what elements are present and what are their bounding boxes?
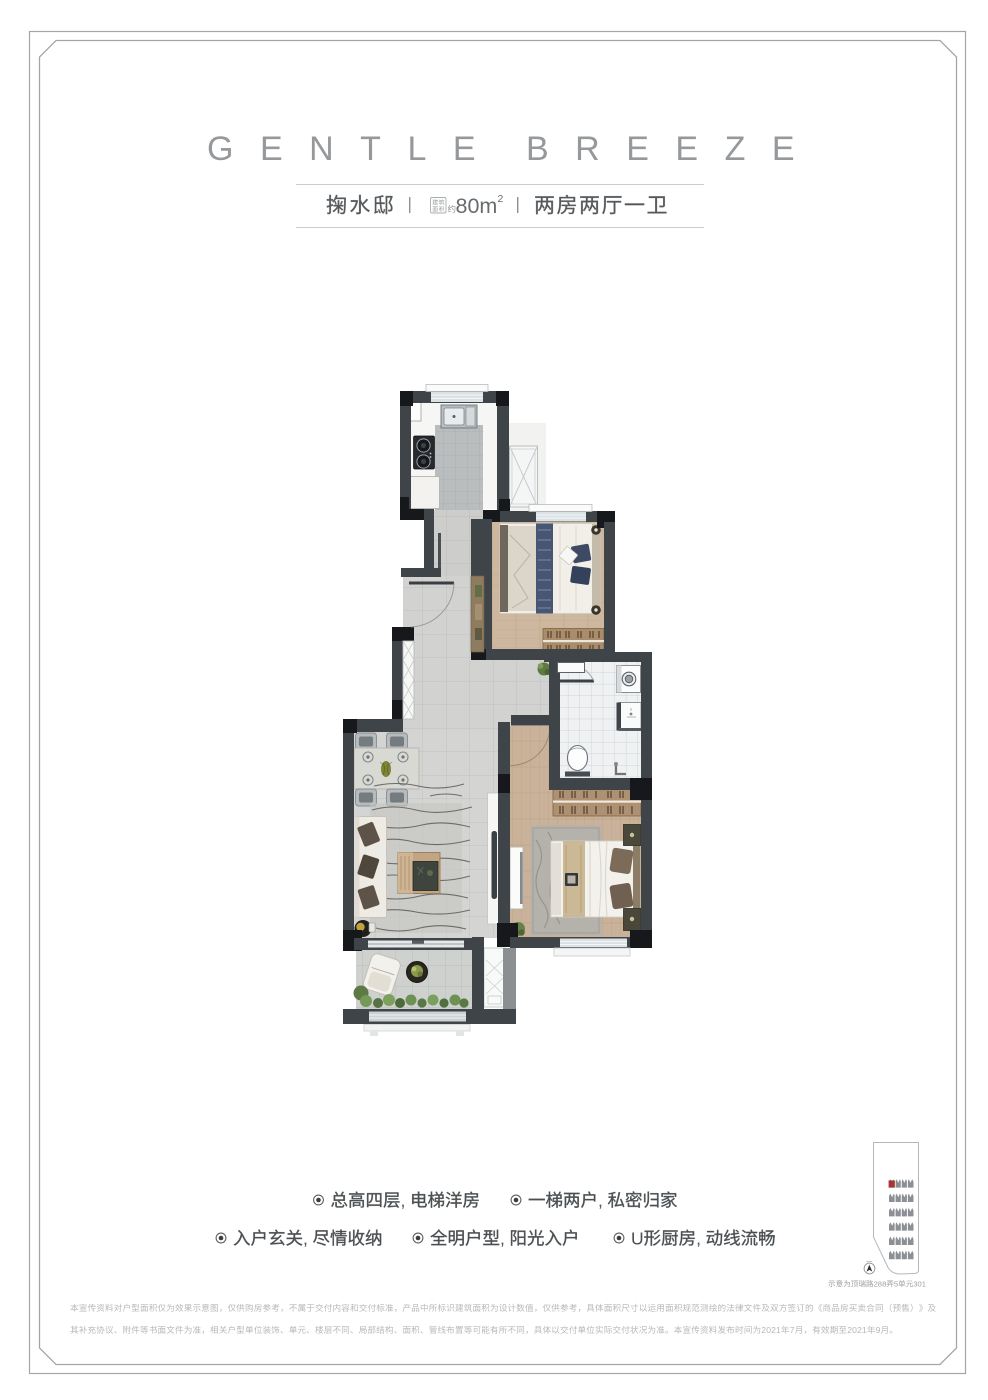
svg-text:,: , [598, 1190, 603, 1210]
svg-text:8: 8 [882, 1280, 886, 1289]
svg-text:GENTLE: GENTLE [207, 130, 502, 168]
svg-text:7: 7 [790, 1325, 795, 1335]
svg-text:1: 1 [922, 1280, 926, 1289]
svg-text:1: 1 [776, 1325, 781, 1335]
svg-text:,: , [696, 1228, 701, 1248]
svg-text:1: 1 [862, 1325, 867, 1335]
svg-text:BREEZE: BREEZE [526, 130, 821, 168]
svg-text:U: U [631, 1228, 644, 1248]
svg-text:,: , [303, 1228, 308, 1248]
svg-text:,: , [500, 1228, 505, 1248]
svg-text:,: , [401, 1190, 406, 1210]
svg-text:9: 9 [876, 1325, 881, 1335]
svg-text:5: 5 [894, 1280, 898, 1289]
svg-text:80m: 80m [456, 194, 498, 218]
svg-text:2: 2 [498, 193, 504, 205]
